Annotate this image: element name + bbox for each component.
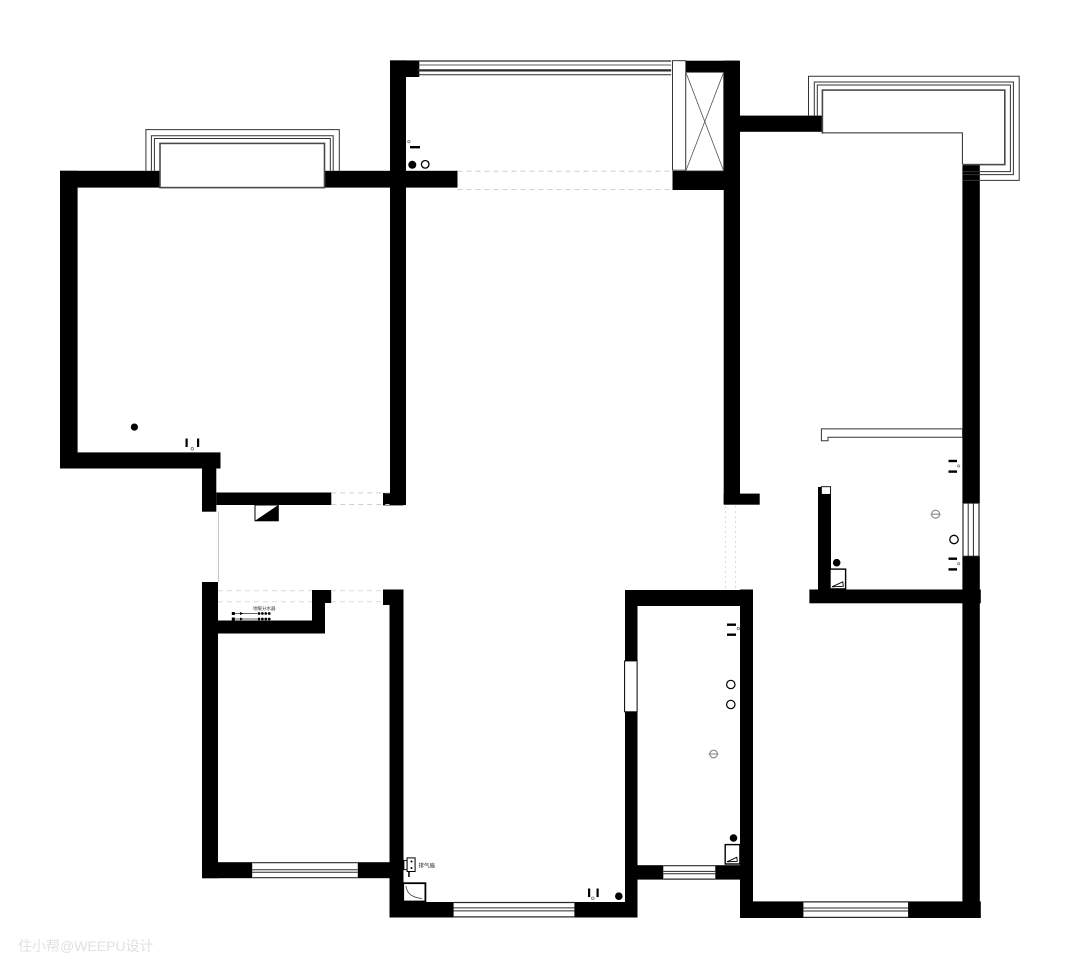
svg-text:排气扇: 排气扇 bbox=[419, 862, 436, 870]
svg-text:地暖分水器: 地暖分水器 bbox=[253, 605, 276, 612]
svg-text:住小帮@WEEPU设计: 住小帮@WEEPU设计 bbox=[18, 938, 154, 954]
